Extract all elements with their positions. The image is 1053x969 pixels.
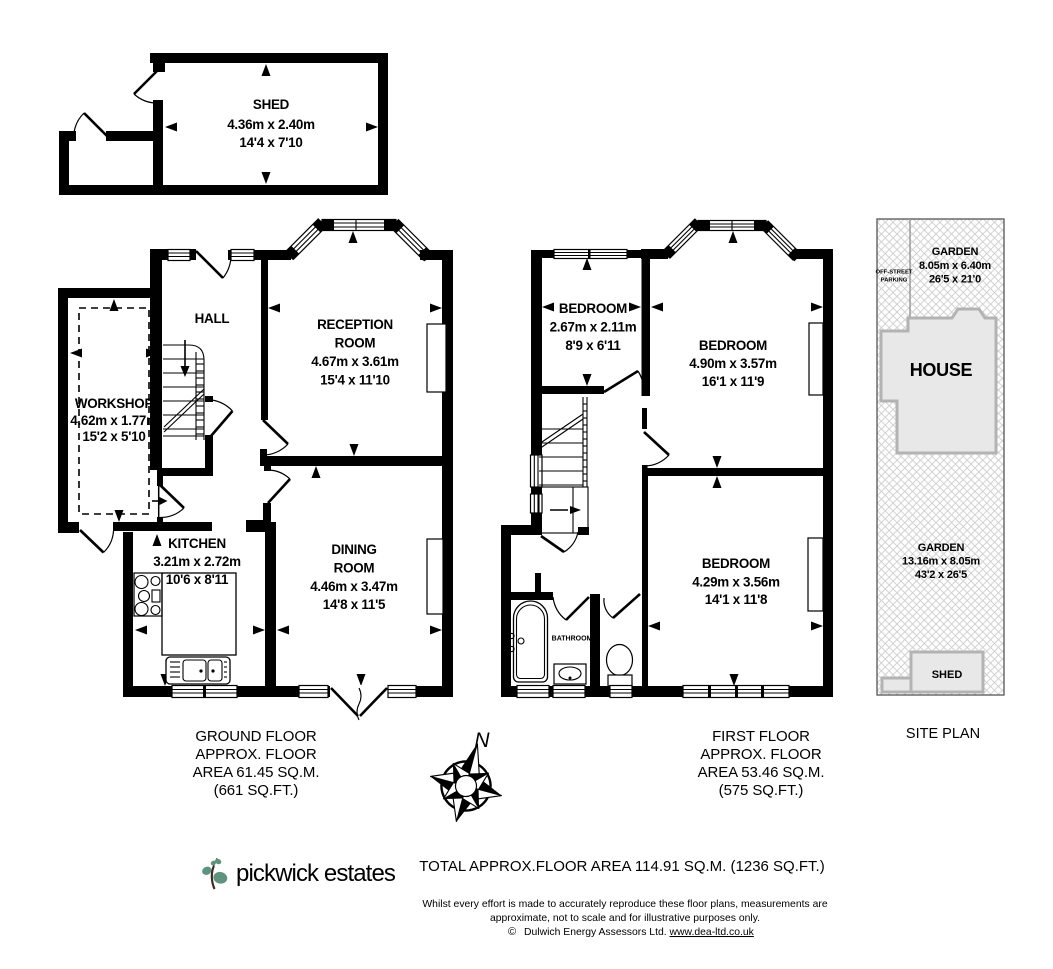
svg-text:WORKSHOP: WORKSHOP bbox=[75, 396, 154, 411]
svg-text:4.46m x 3.47m: 4.46m x 3.47m bbox=[310, 579, 398, 594]
svg-text:APPROX. FLOOR: APPROX. FLOOR bbox=[700, 746, 821, 763]
svg-text:10'6 x 8'11: 10'6 x 8'11 bbox=[166, 572, 229, 587]
svg-text:FIRST FLOOR: FIRST FLOOR bbox=[712, 728, 810, 745]
svg-text:SHED: SHED bbox=[932, 669, 963, 681]
svg-text:DINING: DINING bbox=[331, 542, 376, 557]
svg-text:pickwick estates: pickwick estates bbox=[236, 860, 396, 887]
svg-text:ROOM: ROOM bbox=[335, 336, 376, 351]
svg-text:2.67m x 2.11m: 2.67m x 2.11m bbox=[550, 320, 637, 335]
svg-text:15'2 x 5'10: 15'2 x 5'10 bbox=[82, 429, 145, 444]
svg-text:GARDEN: GARDEN bbox=[932, 246, 979, 258]
svg-text:15'4 x 11'10: 15'4 x 11'10 bbox=[320, 373, 390, 388]
svg-text:ROOM: ROOM bbox=[334, 561, 375, 576]
svg-text:BEDROOM: BEDROOM bbox=[702, 556, 770, 571]
svg-text:SITE PLAN: SITE PLAN bbox=[906, 726, 980, 742]
svg-text:TOTAL APPROX.FLOOR AREA 114.91: TOTAL APPROX.FLOOR AREA 114.91 SQ.M. (12… bbox=[419, 858, 824, 875]
svg-text:AREA 53.46 SQ.M.: AREA 53.46 SQ.M. bbox=[698, 764, 825, 781]
svg-text:8.05m x 6.40m: 8.05m x 6.40m bbox=[919, 260, 991, 272]
svg-text:BEDROOM: BEDROOM bbox=[699, 338, 767, 353]
svg-text:KITCHEN: KITCHEN bbox=[168, 536, 226, 551]
svg-text:BEDROOM: BEDROOM bbox=[559, 301, 627, 316]
svg-text:Dulwich Energy Assessors Ltd.: Dulwich Energy Assessors Ltd. www.dea-lt… bbox=[524, 927, 755, 938]
svg-text:APPROX. FLOOR: APPROX. FLOOR bbox=[195, 746, 316, 763]
svg-text:HOUSE: HOUSE bbox=[910, 360, 973, 380]
svg-text:PARKING: PARKING bbox=[881, 278, 908, 284]
svg-text:RECEPTION: RECEPTION bbox=[317, 317, 393, 332]
svg-text:AREA 61.45 SQ.M.: AREA 61.45 SQ.M. bbox=[193, 764, 320, 781]
svg-text:43'2 x 26'5: 43'2 x 26'5 bbox=[915, 569, 967, 581]
svg-text:(661 SQ.FT.): (661 SQ.FT.) bbox=[214, 782, 299, 799]
svg-text:13.16m x 8.05m: 13.16m x 8.05m bbox=[902, 556, 980, 568]
svg-text:8'9 x 6'11: 8'9 x 6'11 bbox=[565, 338, 621, 353]
svg-text:GROUND FLOOR: GROUND FLOOR bbox=[195, 728, 317, 745]
svg-text:Whilst every effort is made to: Whilst every effort is made to accuratel… bbox=[422, 899, 827, 910]
svg-text:GARDEN: GARDEN bbox=[918, 542, 965, 554]
svg-text:26'5 x 21'0: 26'5 x 21'0 bbox=[929, 274, 981, 286]
svg-text:4.29m x 3.56m: 4.29m x 3.56m bbox=[692, 575, 780, 590]
svg-text:©: © bbox=[508, 926, 516, 938]
svg-text:16'1 x 11'9: 16'1 x 11'9 bbox=[702, 374, 764, 389]
svg-text:14'4 x 7'10: 14'4 x 7'10 bbox=[239, 135, 302, 150]
svg-text:HALL: HALL bbox=[195, 311, 230, 326]
svg-text:OFF-STREET: OFF-STREET bbox=[876, 270, 913, 276]
svg-text:4.67m x 3.61m: 4.67m x 3.61m bbox=[311, 354, 399, 369]
svg-text:4.36m x 2.40m: 4.36m x 2.40m bbox=[227, 117, 315, 132]
svg-text:BATHROOM: BATHROOM bbox=[552, 636, 593, 643]
svg-text:4.62m x 1.77m: 4.62m x 1.77m bbox=[70, 413, 158, 428]
svg-text:approximate, not to scale and: approximate, not to scale and for illust… bbox=[490, 913, 760, 924]
svg-text:SHED: SHED bbox=[253, 97, 290, 112]
svg-text:14'1 x 11'8: 14'1 x 11'8 bbox=[705, 592, 768, 607]
svg-text:14'8 x 11'5: 14'8 x 11'5 bbox=[323, 597, 386, 612]
svg-text:3.21m x 2.72m: 3.21m x 2.72m bbox=[153, 554, 241, 569]
svg-text:4.90m x 3.57m: 4.90m x 3.57m bbox=[689, 356, 777, 371]
svg-text:(575 SQ.FT.): (575 SQ.FT.) bbox=[719, 782, 804, 799]
